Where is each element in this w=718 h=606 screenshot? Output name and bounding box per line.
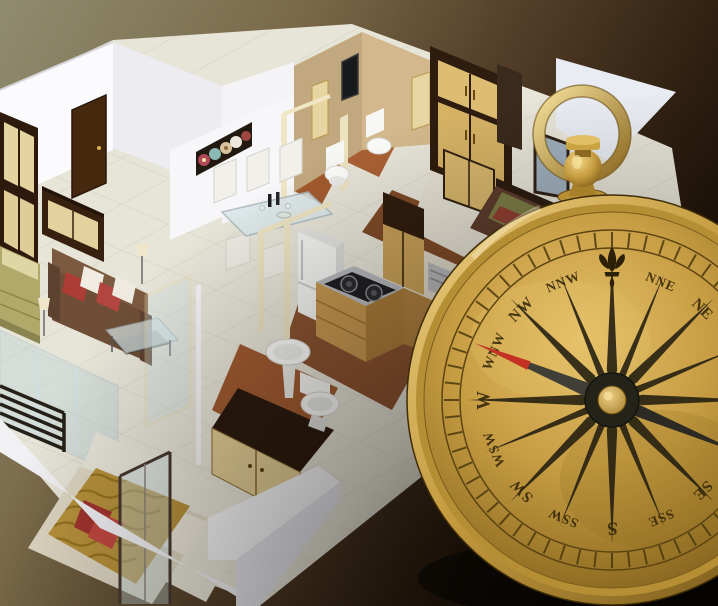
screenshot-canvas: NNENEENEEESESESSESSSWSWWSWWWNWNWNNW (0, 0, 718, 606)
compass-hub (585, 373, 639, 427)
compass-label-S: S (606, 518, 618, 539)
compass-label-W: W (474, 390, 495, 410)
scene-svg: NNENEENEEESESESSESSSWSWWSWWWNWNWNNW (0, 0, 718, 606)
